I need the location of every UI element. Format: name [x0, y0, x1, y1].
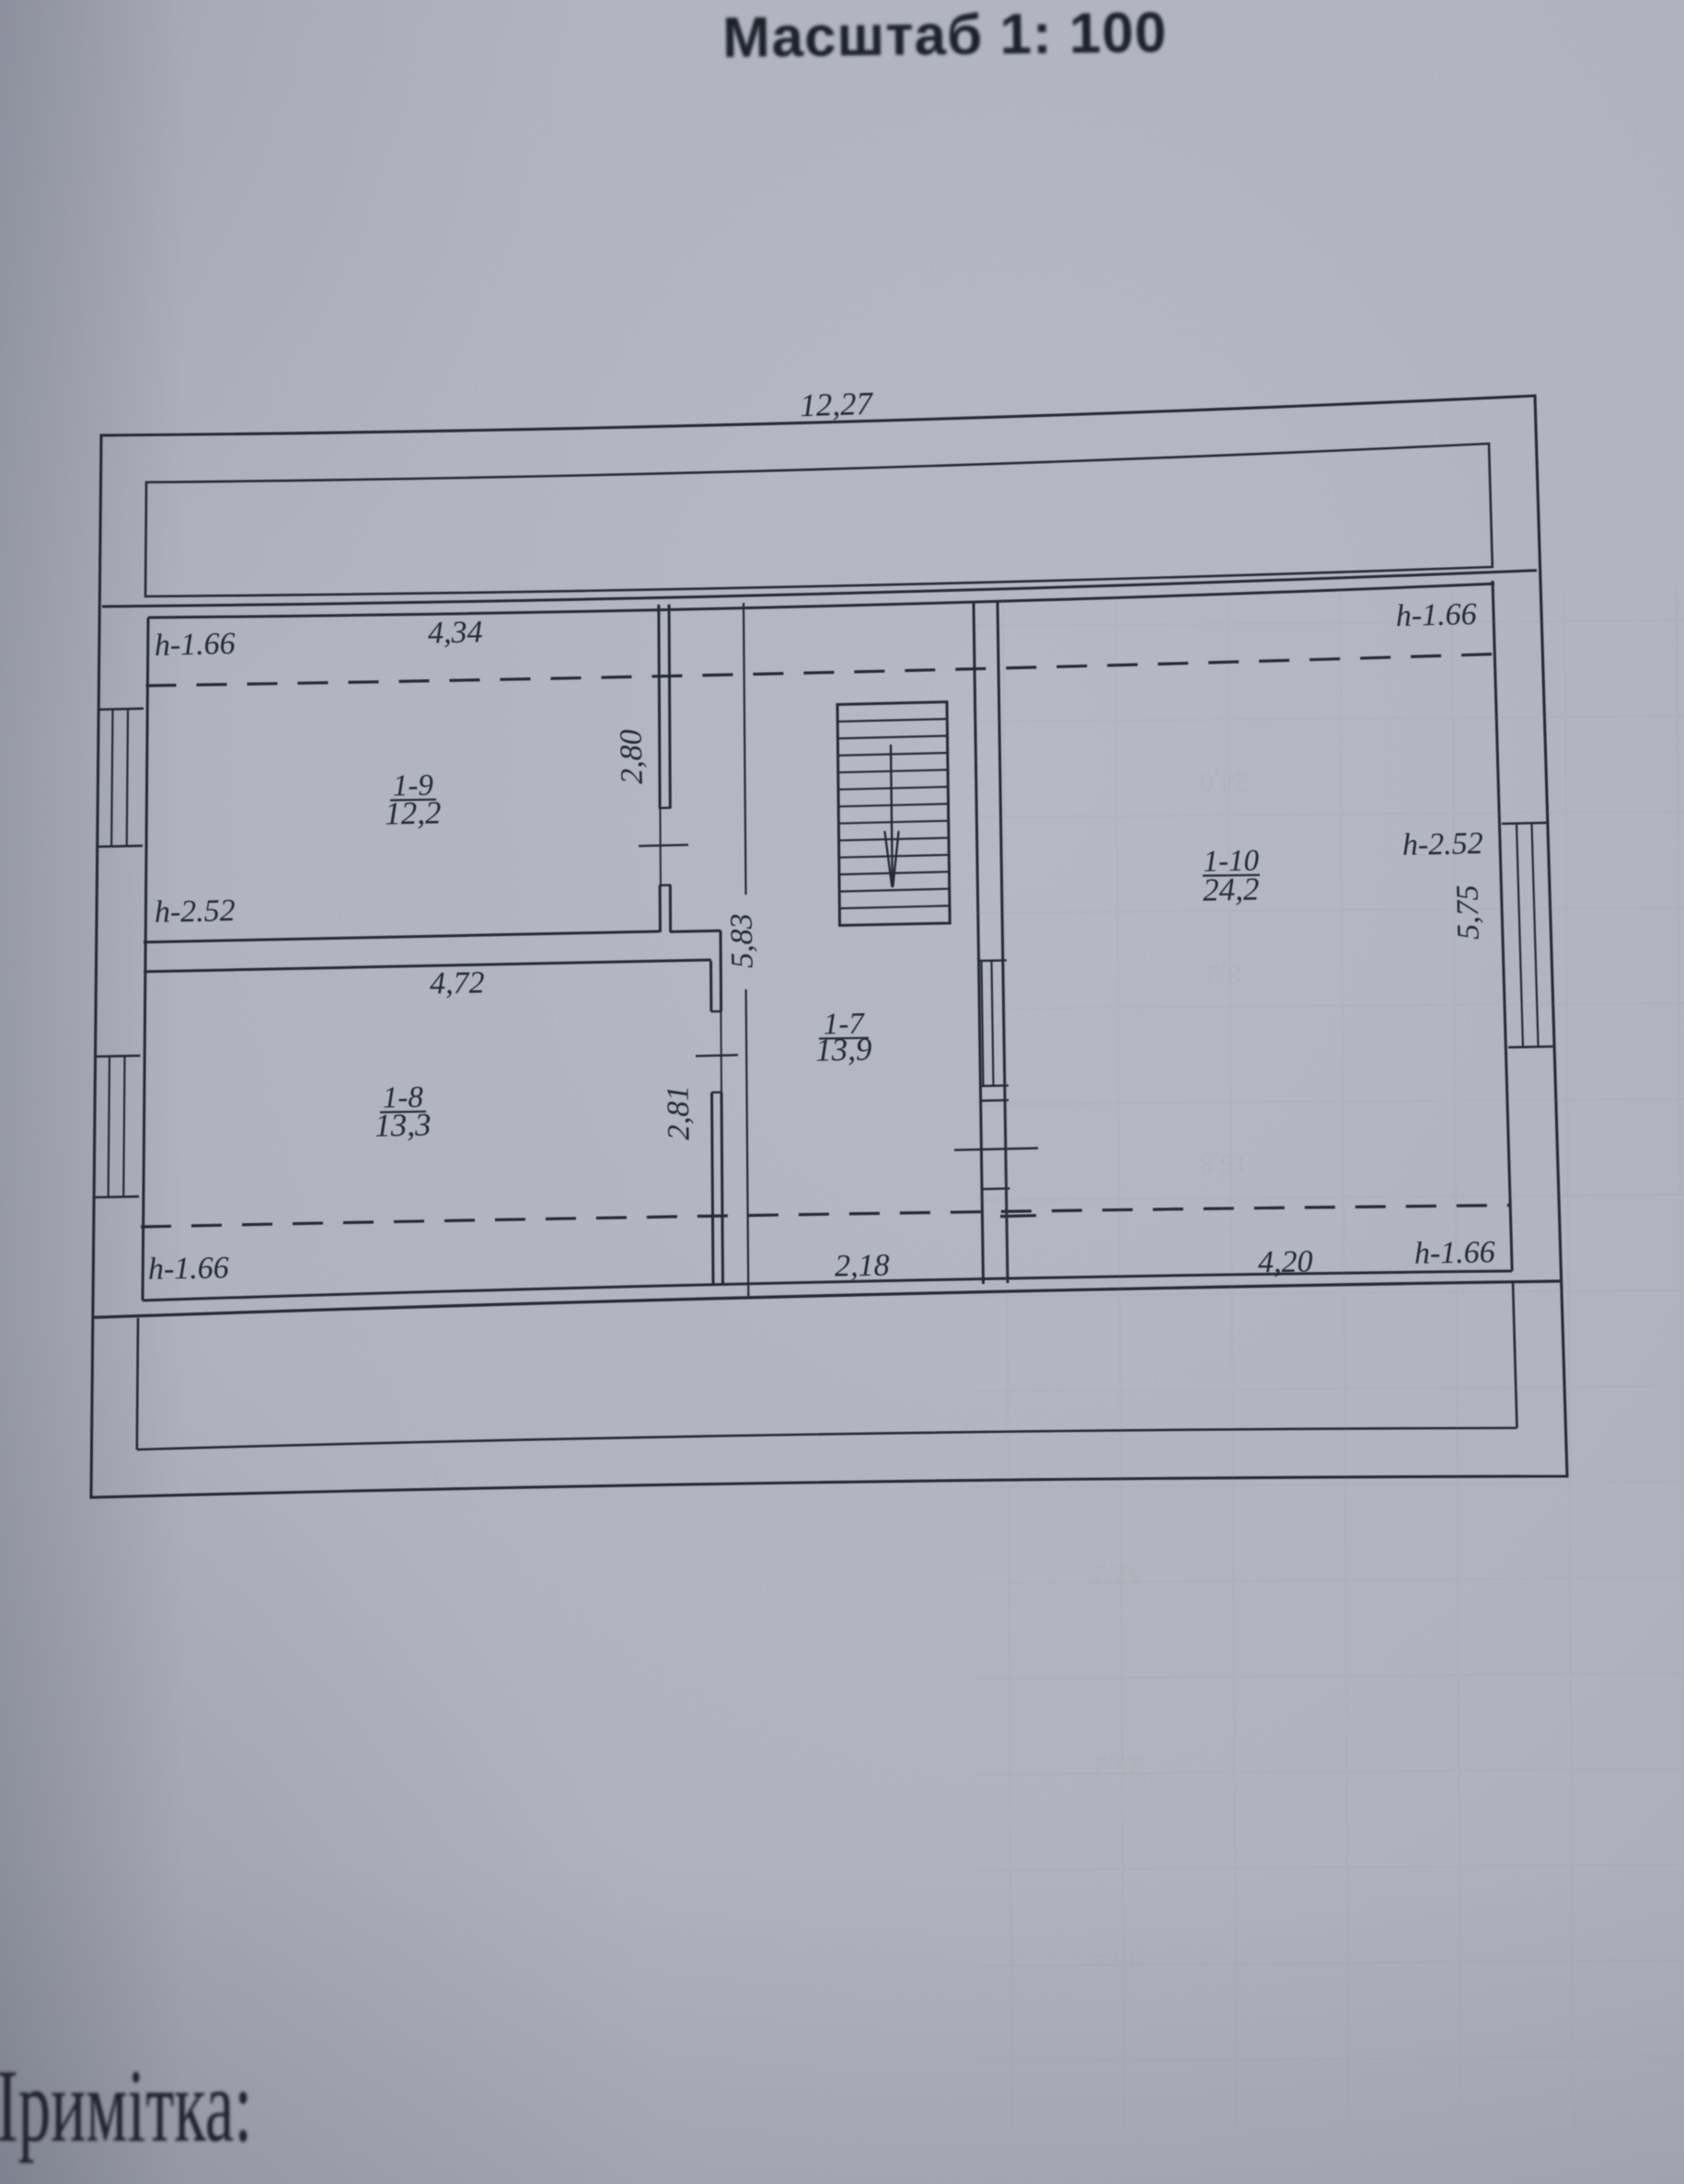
svg-text:4,34: 4,34 — [428, 615, 483, 650]
svg-text:h-1.66: h-1.66 — [148, 1251, 229, 1287]
svg-text:13,9: 13,9 — [815, 1031, 872, 1068]
svg-text:Масштаб 1: 100: Масштаб 1: 100 — [722, 1, 1168, 70]
svg-text:5,75: 5,75 — [1450, 884, 1485, 940]
svg-text:h-1.66: h-1.66 — [1414, 1235, 1495, 1271]
svg-text:4,20: 4,20 — [1258, 1244, 1313, 1279]
svg-text:24,0: 24,0 — [1200, 767, 1249, 797]
svg-text:4,72: 4,72 — [430, 965, 485, 1000]
svg-text:52,2: 52,2 — [1094, 1560, 1143, 1590]
svg-text:24,2: 24,2 — [1203, 871, 1260, 907]
svg-text:16,8: 16,8 — [1200, 1149, 1249, 1179]
svg-text:12,27: 12,27 — [800, 386, 874, 424]
svg-text:h-2.52: h-2.52 — [1401, 826, 1483, 862]
svg-text:Іримітка:: Іримітка: — [0, 2050, 252, 2164]
svg-text:h-1.66: h-1.66 — [1395, 597, 1477, 633]
svg-text:5,83: 5,83 — [724, 913, 759, 968]
svg-text:25,2: 25,2 — [1094, 1751, 1143, 1782]
svg-text:12,2: 12,2 — [385, 794, 442, 831]
svg-text:2,81: 2,81 — [661, 1085, 696, 1140]
svg-text:35,4: 35,4 — [1094, 1945, 1143, 1975]
svg-text:h-1.66: h-1.66 — [154, 627, 236, 663]
svg-text:8,2: 8,2 — [1206, 960, 1241, 990]
svg-text:13,3: 13,3 — [375, 1106, 432, 1143]
svg-text:2,80: 2,80 — [614, 729, 649, 784]
svg-text:2,18: 2,18 — [835, 1248, 890, 1283]
svg-text:h-2.52: h-2.52 — [154, 894, 236, 930]
